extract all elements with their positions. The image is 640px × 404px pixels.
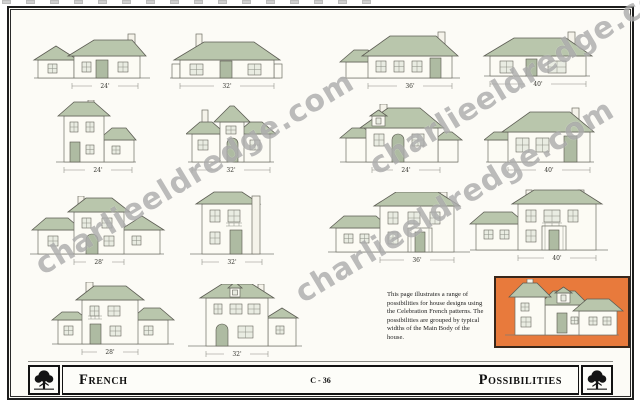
house-elevation-r3c1: 28' xyxy=(28,196,168,268)
width-dimension-label: 32' xyxy=(224,351,250,358)
width-dimension-label: 32' xyxy=(214,83,240,90)
width-dimension-label: 32' xyxy=(219,259,245,266)
tree-icon xyxy=(32,369,56,391)
width-dimension-label: 36' xyxy=(404,257,430,264)
width-dimension-label: 32' xyxy=(218,167,244,174)
house-elevation-r2c1: 24' xyxy=(52,100,138,176)
house-elevation-r2c3: 24' xyxy=(338,104,464,176)
width-dimension-label: 28' xyxy=(97,349,123,356)
house-drawing xyxy=(52,100,138,176)
house-elevation-r4c2: 32' xyxy=(186,284,308,360)
house-drawing xyxy=(484,106,596,176)
pattern-book-page: 24'32'36'40'24'32'24'40'28'32'36'40'28'3… xyxy=(0,0,640,404)
width-dimension-label: 24' xyxy=(92,83,118,90)
house-elevation-r2c2: 32' xyxy=(186,102,276,176)
width-dimension-label: 40' xyxy=(525,81,551,88)
footer-title-band: French C - 36 Possibilities xyxy=(28,365,613,395)
house-elevation-r4c1: 28' xyxy=(50,282,178,358)
tree-logo-left xyxy=(28,365,60,395)
description-text: This page illustrates a range of possibi… xyxy=(387,291,486,342)
house-elevation-r1c4: 40' xyxy=(482,30,594,90)
featured-house-box xyxy=(494,276,630,348)
featured-house-drawing xyxy=(499,279,627,347)
width-dimension-label: 24' xyxy=(393,167,419,174)
footer-band: French C - 36 Possibilities xyxy=(62,365,579,395)
house-elevation-r1c1: 24' xyxy=(32,30,158,92)
house-elevation-r1c3: 36' xyxy=(338,28,466,92)
width-dimension-label: 36' xyxy=(397,83,423,90)
house-drawing xyxy=(324,192,476,266)
house-drawing xyxy=(28,196,168,268)
tree-icon xyxy=(585,369,609,391)
house-drawing xyxy=(186,102,276,176)
footer-top-rule xyxy=(28,361,613,362)
house-drawing xyxy=(186,284,308,360)
footer-plate-number: C - 36 xyxy=(63,376,578,385)
house-drawing xyxy=(50,282,178,358)
house-elevation-r1c2: 32' xyxy=(168,32,286,92)
width-dimension-label: 40' xyxy=(536,167,562,174)
house-drawing xyxy=(338,104,464,176)
house-elevation-r2c4: 40' xyxy=(484,106,596,176)
tree-logo-right xyxy=(581,365,613,395)
house-elevation-r3c2: 32' xyxy=(186,190,278,268)
house-drawing xyxy=(186,190,278,268)
house-drawing xyxy=(468,188,614,264)
house-elevation-r3c4: 40' xyxy=(468,188,614,264)
width-dimension-label: 40' xyxy=(544,255,570,262)
width-dimension-label: 24' xyxy=(85,167,111,174)
width-dimension-label: 28' xyxy=(86,259,112,266)
house-elevation-r3c3: 36' xyxy=(324,192,476,266)
